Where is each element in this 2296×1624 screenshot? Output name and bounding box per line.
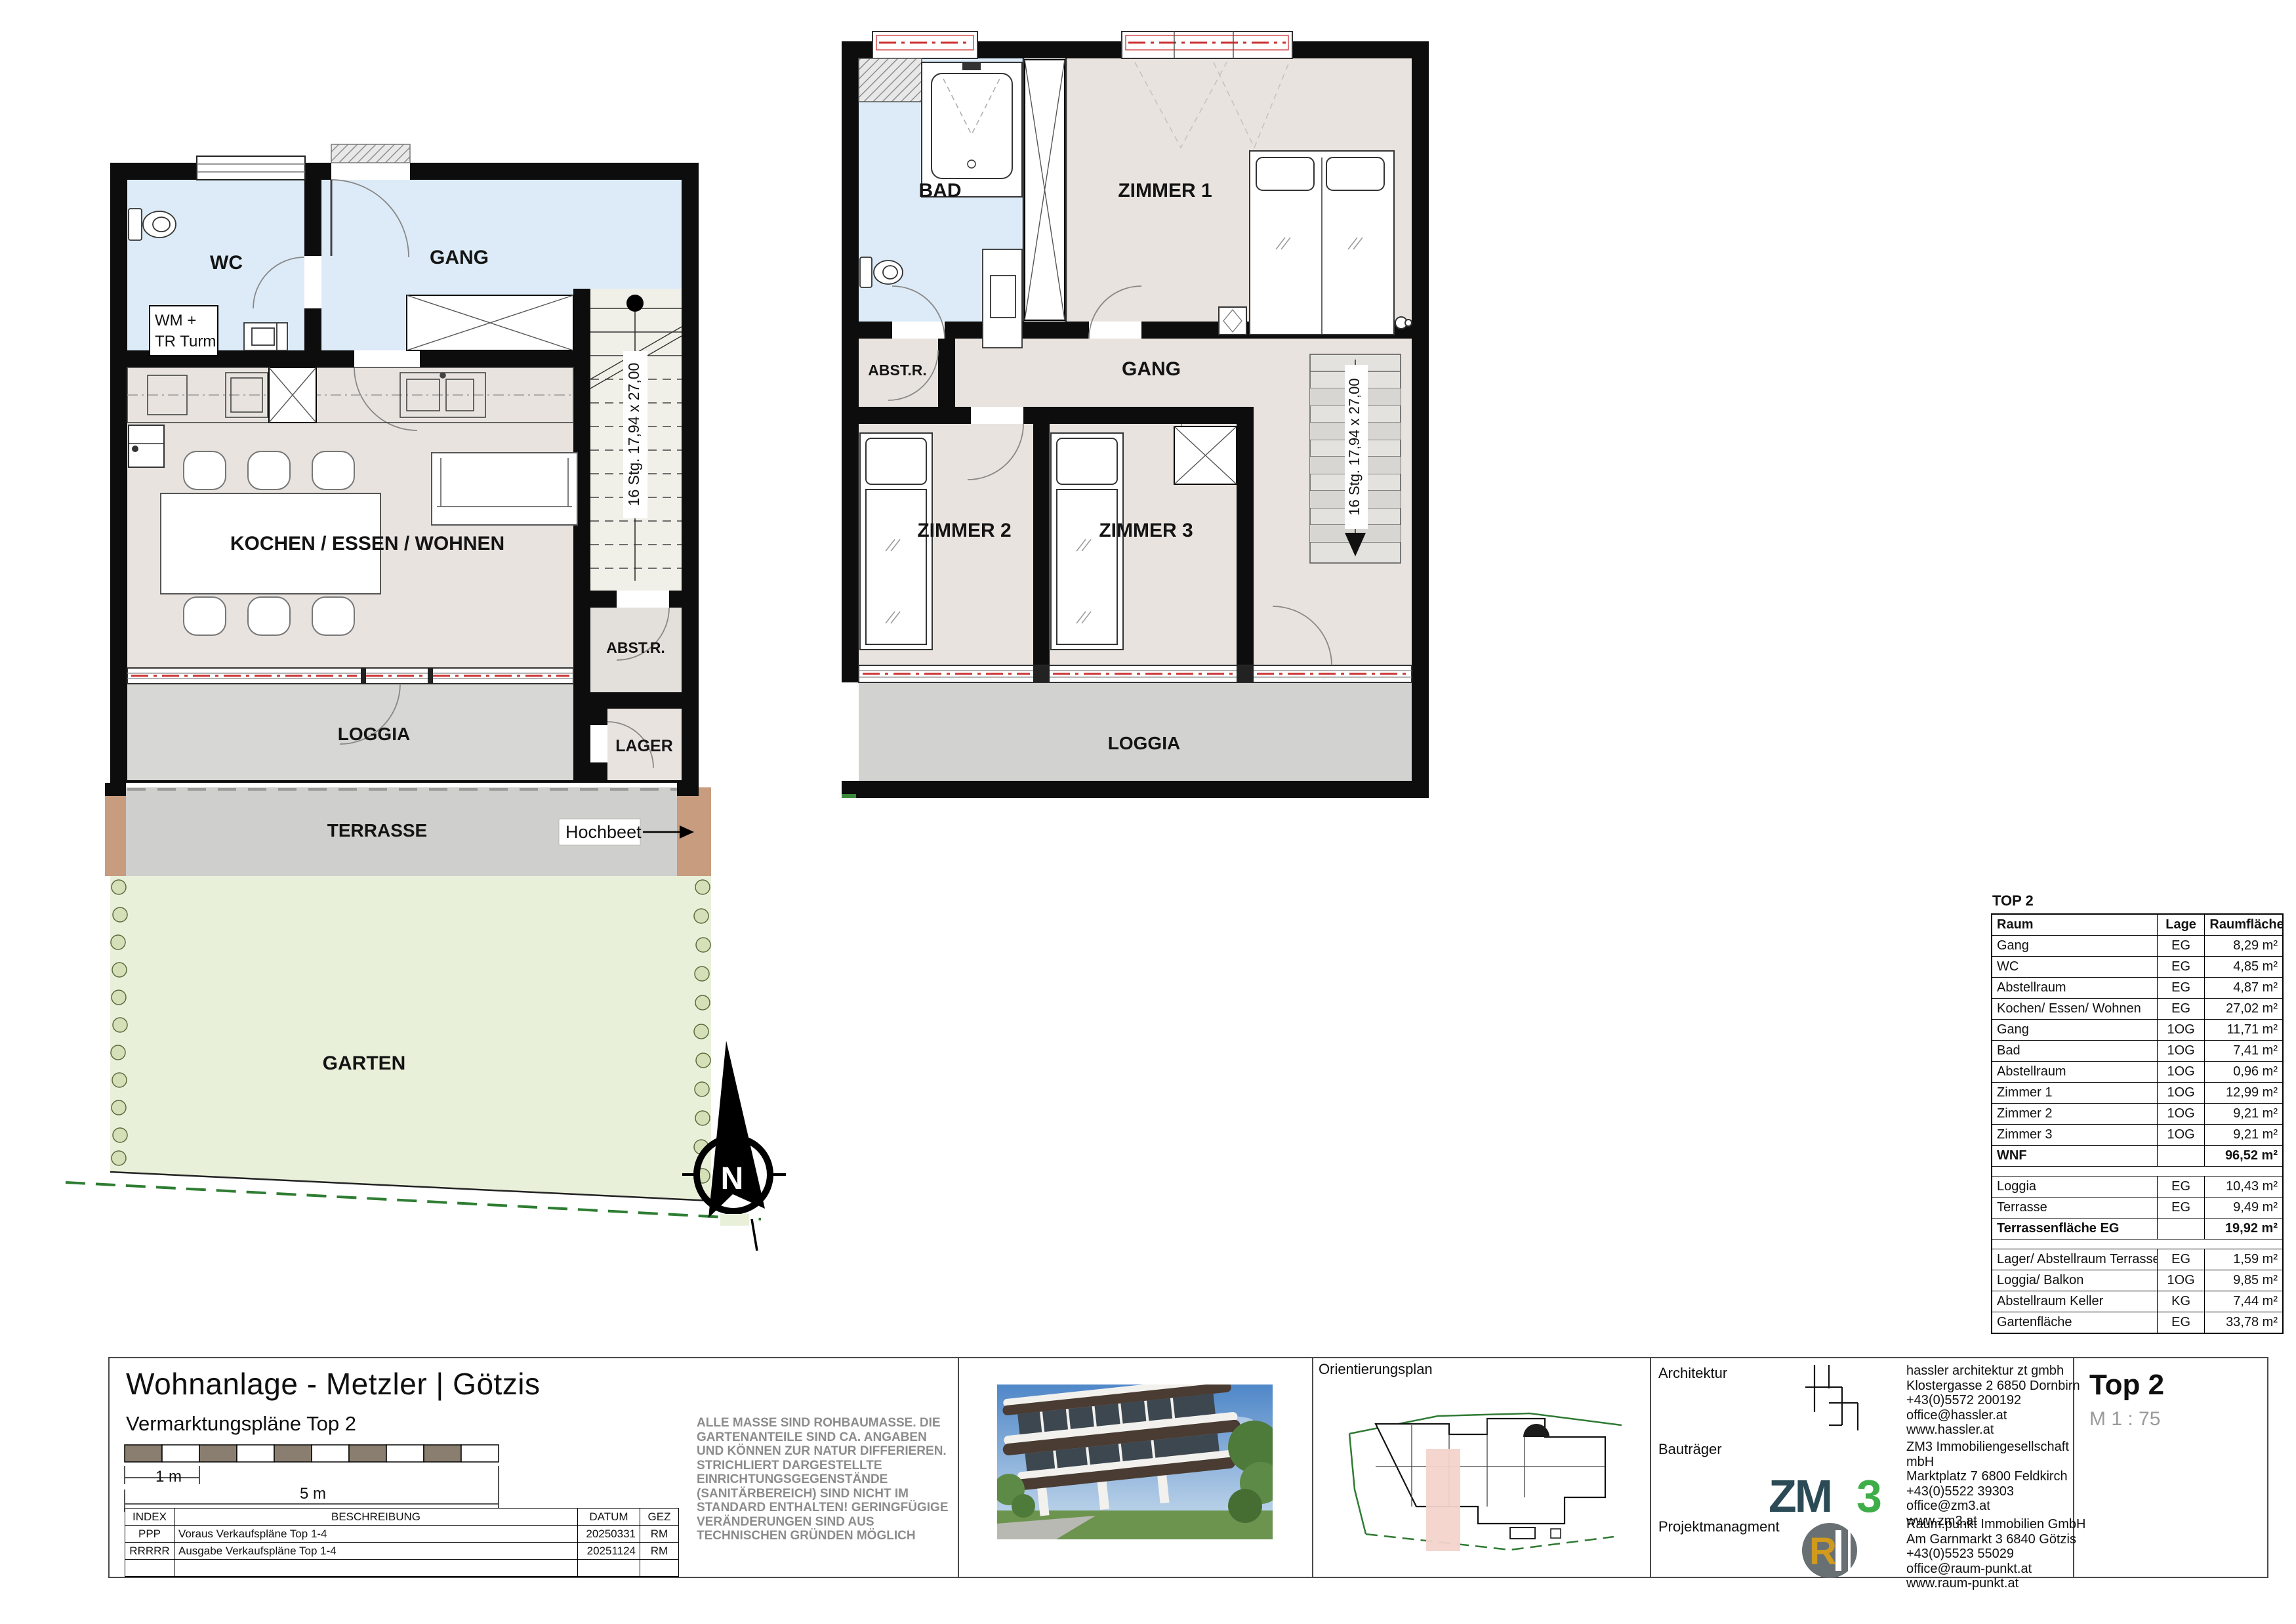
drawing-sheet: 16 Stg. 17,94 x 27,00 WM + TR Turm bbox=[0, 0, 2296, 1624]
zm3-logo: ZM 3 bbox=[1763, 1467, 1901, 1522]
highlighted-unit bbox=[1426, 1449, 1460, 1551]
building-render-image bbox=[997, 1385, 1273, 1539]
stamp-unit: Top 2 bbox=[2089, 1369, 2164, 1402]
plan-eg: 16 Stg. 17,94 x 27,00 WM + TR Turm bbox=[66, 144, 761, 1219]
svg-text:ZM: ZM bbox=[1769, 1470, 1831, 1522]
bed-zimmer2 bbox=[860, 433, 932, 650]
stamp-scale: M 1 : 75 bbox=[2089, 1408, 2160, 1430]
index-table: INDEX BESCHREIBUNG DATUM GEZ PPP Voraus … bbox=[125, 1508, 679, 1577]
window-south-og bbox=[859, 665, 1412, 682]
table-row: AbstellraumEG4,87 m² bbox=[1992, 978, 2283, 999]
wardrobe-zimmer3 bbox=[1174, 427, 1237, 484]
svg-text:TR Turm: TR Turm bbox=[155, 333, 216, 350]
label-kochen: KOCHEN / ESSEN / WOHNEN bbox=[230, 533, 504, 554]
bathtub bbox=[922, 62, 1022, 197]
index-header: INDEX BESCHREIBUNG DATUM GEZ bbox=[125, 1509, 679, 1526]
entrance-canopy-hatch bbox=[331, 144, 410, 163]
label-wc: WC bbox=[210, 252, 243, 274]
scale-5m: 5 m bbox=[300, 1485, 326, 1503]
orientierungsplan-label: Orientierungsplan bbox=[1319, 1361, 1433, 1378]
wardrobe-column bbox=[1025, 60, 1065, 320]
label-terrasse: TERRASSE bbox=[327, 820, 427, 841]
table-gap-row bbox=[1992, 1239, 2283, 1249]
table-gap-row bbox=[1992, 1167, 2283, 1176]
divider bbox=[958, 1358, 959, 1577]
raumpunkt-logo: R bbox=[1800, 1521, 1859, 1580]
role-bautraeger: Bauträger bbox=[1658, 1441, 1722, 1458]
label-loggia-eg: LOGGIA bbox=[338, 724, 410, 744]
table-row: Loggia/ Balkon1OG9,85 m² bbox=[1992, 1270, 2283, 1291]
table-row: Bad1OG7,41 m² bbox=[1992, 1041, 2283, 1062]
window-north-zimmer1 bbox=[1122, 31, 1292, 58]
label-garten: GARTEN bbox=[323, 1052, 406, 1074]
label-gang-eg: GANG bbox=[430, 247, 489, 268]
window-north-eg bbox=[197, 156, 305, 180]
index-row: PPP Voraus Verkaufspläne Top 1-4 2025033… bbox=[125, 1526, 679, 1543]
scale-1m: 1 m bbox=[155, 1468, 182, 1486]
bed-zimmer3 bbox=[1051, 433, 1123, 650]
svg-text:3: 3 bbox=[1856, 1470, 1882, 1522]
area-table: TOP 2 Raum Lage Raumfläche GangEG8,29 m²… bbox=[1991, 892, 2285, 1334]
label-loggia-og: LOGGIA bbox=[1108, 733, 1180, 753]
role-projektmanagment: Projektmanagment bbox=[1658, 1518, 1780, 1535]
label-abstr-og: ABST.R. bbox=[868, 362, 926, 379]
label-abstr-eg: ABST.R. bbox=[606, 639, 665, 656]
window-north-bad bbox=[872, 31, 977, 58]
architektur-contact: hassler architektur zt gmbh Klostergasse… bbox=[1906, 1364, 2080, 1438]
table-row-terrassenflaeche: Terrassenfläche EG19,92 m² bbox=[1992, 1218, 2283, 1239]
site-marker-green bbox=[842, 794, 856, 798]
stair-label-eg: 16 Stg. 17,94 x 27,00 bbox=[625, 363, 642, 507]
kitchen-appliance-box bbox=[269, 367, 316, 423]
table-row: Zimmer 11OG12,99 m² bbox=[1992, 1083, 2283, 1104]
table-row: Kochen/ Essen/ WohnenEG27,02 m² bbox=[1992, 999, 2283, 1020]
table-row: WCEG4,85 m² bbox=[1992, 957, 2283, 978]
garden-area bbox=[110, 876, 711, 1201]
vanity bbox=[983, 249, 1022, 348]
area-table-title: TOP 2 bbox=[1992, 892, 2285, 909]
label-zimmer1: ZIMMER 1 bbox=[1118, 180, 1212, 201]
label-lager: LAGER bbox=[615, 737, 673, 755]
compass-n: N bbox=[721, 1161, 744, 1196]
index-row: RRRRR Ausgabe Verkaufspläne Top 1-4 2025… bbox=[125, 1543, 679, 1560]
orientation-plan bbox=[1313, 1378, 1649, 1575]
table-row: Lager/ Abstellraum TerrasseEG1,59 m² bbox=[1992, 1249, 2283, 1270]
table-row: LoggiaEG10,43 m² bbox=[1992, 1176, 2283, 1197]
table-row-wnf: WNF96,52 m² bbox=[1992, 1146, 2283, 1167]
sofa-eg bbox=[432, 453, 577, 525]
hassler-logo bbox=[1799, 1362, 1871, 1436]
table-row: Abstellraum KellerKG7,44 m² bbox=[1992, 1291, 2283, 1312]
table-row: GangEG8,29 m² bbox=[1992, 936, 2283, 957]
shower bbox=[859, 58, 922, 102]
svg-text:WM +: WM + bbox=[155, 312, 196, 329]
role-architektur: Architektur bbox=[1658, 1365, 1727, 1382]
table-row: TerrasseEG9,49 m² bbox=[1992, 1197, 2283, 1218]
window-south-eg bbox=[127, 668, 573, 684]
svg-text:Hochbeet: Hochbeet bbox=[565, 822, 642, 842]
label-gang-og: GANG bbox=[1122, 358, 1181, 380]
table-row: Gang1OG11,71 m² bbox=[1992, 1020, 2283, 1041]
washbasin-eg bbox=[244, 323, 287, 350]
table-row: Zimmer 21OG9,21 m² bbox=[1992, 1104, 2283, 1125]
project-title: Wohnanlage - Metzler | Götzis bbox=[126, 1366, 541, 1402]
divider bbox=[1650, 1358, 1651, 1577]
plan-og: 16 Stg. 17,94 x 27,00 BAD ZIMMER 1 ABST.… bbox=[842, 31, 1429, 798]
gang-wardrobe bbox=[407, 295, 573, 350]
area-table-header: Raum Lage Raumfläche bbox=[1992, 914, 2283, 936]
label-zimmer2: ZIMMER 2 bbox=[917, 520, 1011, 541]
disclaimer-text: ALLE MASSE SIND ROHBAUMASSE. DIE GARTENA… bbox=[697, 1416, 950, 1543]
table-row: Abstellraum1OG0,96 m² bbox=[1992, 1062, 2283, 1083]
index-row bbox=[125, 1560, 679, 1577]
toilet-eg bbox=[129, 209, 176, 240]
wm-tr-box: WM + TR Turm bbox=[150, 306, 218, 356]
table-row: Zimmer 31OG9,21 m² bbox=[1992, 1125, 2283, 1146]
projektmanagment-contact: Raum.punkt Immobilien GmbH Am Garnmarkt … bbox=[1906, 1517, 2085, 1591]
plan-subtitle: Vermarktungspläne Top 2 bbox=[126, 1412, 356, 1436]
svg-text:R: R bbox=[1809, 1530, 1837, 1573]
table-row: GartenflächeEG33,78 m² bbox=[1992, 1312, 2283, 1334]
stair-label-og: 16 Stg. 17,94 x 27,00 bbox=[1346, 378, 1363, 515]
label-bad: BAD bbox=[919, 180, 962, 201]
stair-og: 16 Stg. 17,94 x 27,00 bbox=[1310, 354, 1401, 563]
fridge-eg bbox=[129, 425, 164, 467]
label-zimmer3: ZIMMER 3 bbox=[1099, 520, 1193, 541]
bautraeger-contact: ZM3 Immobiliengesellschaft mbH Marktplat… bbox=[1906, 1440, 2069, 1528]
